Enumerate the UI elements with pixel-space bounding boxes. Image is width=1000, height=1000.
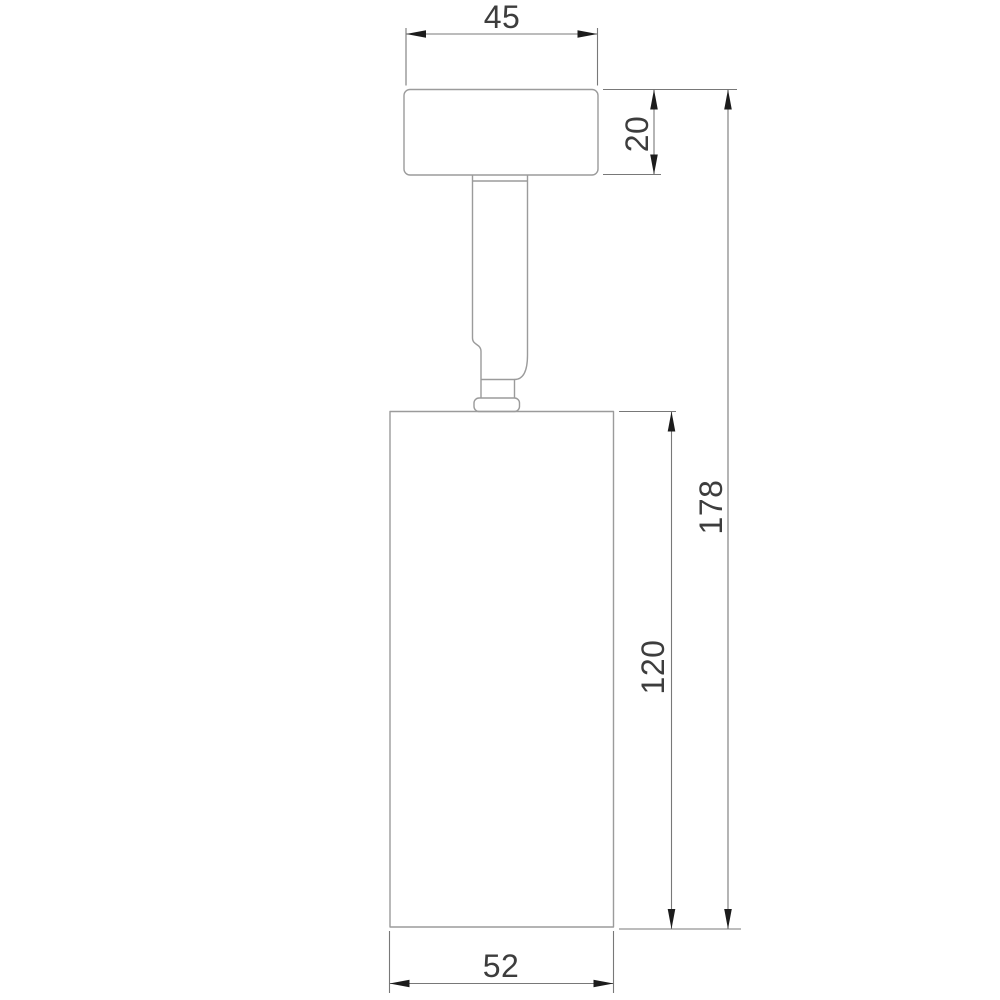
arrowhead-left-icon: [390, 980, 410, 988]
dim-canopy-height: 20: [603, 90, 737, 175]
joint-collar-outline: [474, 398, 520, 412]
dim-label-canopy-height: 20: [619, 116, 655, 153]
arrowhead-up-icon: [724, 90, 732, 110]
dim-label-body-height: 120: [635, 640, 671, 695]
fixture-outline: [390, 90, 614, 928]
dim-label-body-width: 52: [483, 948, 520, 984]
arrowhead-right-icon: [578, 30, 598, 38]
drawing-canvas: 45 20 178 120: [0, 0, 1000, 1000]
stem-left-edge: [473, 175, 482, 398]
arrowhead-down-icon: [650, 155, 658, 175]
dim-body-height: 120: [619, 412, 676, 930]
arrowhead-right-icon: [594, 980, 614, 988]
arrowhead-down-icon: [668, 909, 676, 929]
arrowhead-up-icon: [668, 412, 676, 432]
dim-overall-height: 178: [619, 90, 741, 930]
dimension-drawing: 45 20 178 120: [0, 0, 1000, 1000]
dim-label-overall-height: 178: [693, 480, 729, 535]
dim-canopy-width: 45: [406, 0, 598, 86]
arrowhead-left-icon: [406, 30, 426, 38]
dim-label-canopy-width: 45: [484, 0, 521, 35]
arrowhead-up-icon: [650, 90, 658, 110]
canopy-outline: [404, 90, 598, 176]
lamp-body-outline: [390, 412, 614, 928]
arrowhead-down-icon: [724, 909, 732, 929]
dim-body-width: 52: [390, 931, 614, 993]
stem-right-edge: [515, 175, 528, 398]
